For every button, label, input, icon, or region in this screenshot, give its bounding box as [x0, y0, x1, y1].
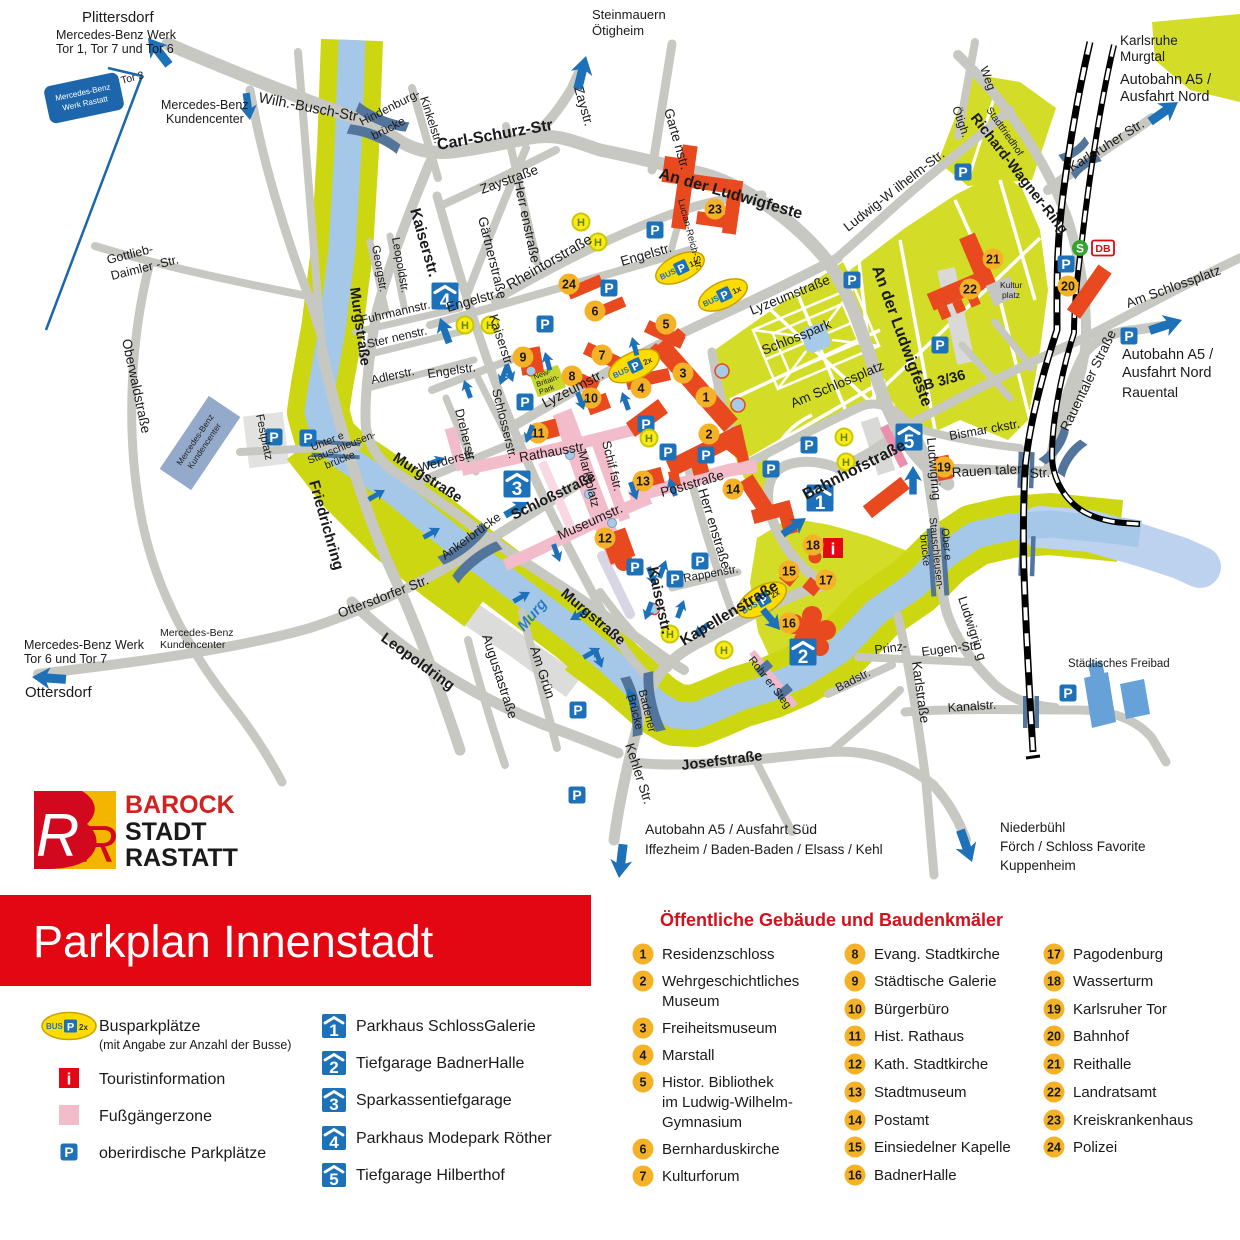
svg-text:Rauental: Rauental [1122, 384, 1178, 400]
svg-text:DB: DB [1095, 243, 1111, 255]
svg-text:Tor 1, Tor 7 und Tor 6: Tor 1, Tor 7 und Tor 6 [56, 42, 174, 56]
svg-text:2: 2 [798, 647, 809, 668]
svg-text:Kultur: Kultur [1000, 280, 1022, 290]
svg-text:24: 24 [562, 278, 576, 292]
svg-text:2: 2 [706, 428, 713, 442]
svg-text:Bernharduskirche: Bernharduskirche [662, 1141, 780, 1158]
svg-text:Einsiedelner Kapelle: Einsiedelner Kapelle [874, 1139, 1011, 1156]
svg-text:Kreiskrankenhaus: Kreiskrankenhaus [1073, 1112, 1193, 1129]
svg-text:Karlsruhe: Karlsruhe [1120, 33, 1178, 48]
svg-text:1: 1 [703, 391, 710, 405]
svg-text:7: 7 [640, 1170, 647, 1184]
svg-text:RASTATT: RASTATT [125, 844, 238, 872]
svg-text:Ötigheim: Ötigheim [592, 23, 644, 38]
svg-text:12: 12 [848, 1058, 862, 1072]
svg-text:Bürgerbüro: Bürgerbüro [874, 1001, 949, 1018]
svg-text:Evang. Stadtkirche: Evang. Stadtkirche [874, 946, 1000, 963]
svg-text:15: 15 [848, 1141, 862, 1155]
svg-text:Gymnasium: Gymnasium [662, 1114, 742, 1131]
svg-text:Museum: Museum [662, 993, 720, 1010]
svg-text:Städtisches Freibad: Städtisches Freibad [1068, 658, 1170, 670]
svg-text:Str.: Str. [1029, 465, 1050, 481]
svg-text:10: 10 [584, 392, 598, 406]
svg-text:Kundencenter: Kundencenter [166, 112, 244, 126]
svg-text:platz: platz [1002, 290, 1020, 300]
svg-text:Ottersdorf: Ottersdorf [25, 684, 93, 701]
svg-text:Touristinformation: Touristinformation [99, 1071, 225, 1088]
svg-text:Karlsruher Tor: Karlsruher Tor [1073, 1001, 1167, 1018]
svg-text:Fußgängerzone: Fußgängerzone [99, 1108, 212, 1125]
svg-text:Plittersdorf: Plittersdorf [82, 9, 155, 26]
svg-text:6: 6 [592, 305, 599, 319]
svg-text:9: 9 [852, 975, 859, 989]
svg-text:22: 22 [963, 283, 977, 297]
svg-text:Wasserturm: Wasserturm [1073, 973, 1153, 990]
svg-text:1: 1 [640, 948, 647, 962]
svg-text:4: 4 [329, 1133, 339, 1152]
svg-text:Kulturforum: Kulturforum [662, 1168, 740, 1185]
svg-text:9: 9 [520, 351, 527, 365]
svg-text:P: P [64, 1144, 73, 1160]
svg-text:7: 7 [599, 349, 606, 363]
svg-text:P: P [67, 1022, 74, 1034]
svg-text:21: 21 [986, 253, 1000, 267]
svg-text:Autobahn A5 /: Autobahn A5 / [1120, 72, 1212, 88]
svg-text:im Ludwig-Wilhelm-: im Ludwig-Wilhelm- [662, 1094, 793, 1111]
svg-text:Mercedes-Benz Werk: Mercedes-Benz Werk [56, 28, 177, 42]
svg-text:5: 5 [663, 318, 670, 332]
svg-text:Förch / Schloss Favorite: Förch / Schloss Favorite [1000, 839, 1146, 854]
svg-text:12: 12 [598, 532, 612, 546]
svg-text:Parkhaus SchlossGalerie: Parkhaus SchlossGalerie [356, 1018, 536, 1035]
svg-text:2: 2 [329, 1058, 338, 1077]
svg-text:(mit Angabe zur Anzahl der Bus: (mit Angabe zur Anzahl der Busse) [99, 1038, 291, 1052]
svg-text:3: 3 [329, 1095, 338, 1114]
svg-text:Niederbühl: Niederbühl [1000, 820, 1065, 835]
svg-text:Kath. Stadtkirche: Kath. Stadtkirche [874, 1056, 988, 1073]
svg-text:Mercedes-Benz Werk: Mercedes-Benz Werk [24, 638, 145, 652]
svg-text:Landratsamt: Landratsamt [1073, 1084, 1157, 1101]
svg-text:14: 14 [848, 1114, 862, 1128]
svg-text:R: R [36, 802, 79, 869]
svg-text:Autobahn A5 /: Autobahn A5 / [1122, 347, 1214, 363]
svg-text:Reithalle: Reithalle [1073, 1056, 1131, 1073]
svg-text:14: 14 [726, 483, 740, 497]
svg-text:BAROCK: BAROCK [125, 791, 235, 819]
svg-text:Steinmauern: Steinmauern [592, 7, 666, 22]
svg-text:Polizei: Polizei [1073, 1139, 1117, 1156]
svg-text:18: 18 [806, 539, 820, 553]
svg-text:4: 4 [638, 382, 645, 396]
svg-text:Autobahn A5 / Ausfahrt Süd: Autobahn A5 / Ausfahrt Süd [645, 821, 817, 837]
svg-text:Tiefgarage Hilberthof: Tiefgarage Hilberthof [356, 1167, 505, 1184]
svg-text:Busparkplätze: Busparkplätze [99, 1018, 200, 1035]
svg-text:11: 11 [848, 1030, 861, 1044]
svg-text:20: 20 [1047, 1030, 1061, 1044]
svg-text:BadnerHalle: BadnerHalle [874, 1167, 957, 1184]
svg-text:10: 10 [848, 1003, 862, 1017]
svg-text:2x: 2x [79, 1023, 88, 1032]
svg-text:23: 23 [708, 203, 722, 217]
svg-text:i: i [831, 540, 836, 559]
svg-text:STADT: STADT [125, 818, 206, 846]
svg-text:Kuppenheim: Kuppenheim [1000, 858, 1076, 873]
svg-text:2: 2 [640, 975, 647, 989]
svg-text:Residenzschloss: Residenzschloss [662, 946, 775, 963]
svg-text:3: 3 [512, 479, 523, 500]
svg-text:22: 22 [1047, 1086, 1061, 1100]
svg-text:19: 19 [1047, 1003, 1061, 1017]
svg-text:16: 16 [848, 1169, 862, 1183]
svg-text:Hist. Rathaus: Hist. Rathaus [874, 1028, 964, 1045]
svg-text:Marstall: Marstall [662, 1047, 715, 1064]
svg-text:3: 3 [640, 1022, 647, 1036]
svg-text:S: S [1076, 242, 1084, 256]
svg-text:BUS: BUS [46, 1022, 64, 1031]
svg-text:Sparkassentiefgarage: Sparkassentiefgarage [356, 1092, 512, 1109]
svg-text:Murgtal: Murgtal [1120, 49, 1165, 64]
svg-text:Städtische Galerie: Städtische Galerie [874, 973, 997, 990]
svg-text:Tor 6 und Tor 7: Tor 6 und Tor 7 [24, 652, 107, 666]
svg-text:Stadtmuseum: Stadtmuseum [874, 1084, 967, 1101]
svg-text:Kundencenter: Kundencenter [160, 639, 226, 651]
svg-text:24: 24 [1047, 1141, 1061, 1155]
svg-text:13: 13 [848, 1086, 862, 1100]
svg-text:Parkplan Innenstadt: Parkplan Innenstadt [33, 916, 434, 967]
svg-text:Ausfahrt Nord: Ausfahrt Nord [1122, 365, 1211, 381]
svg-text:8: 8 [852, 948, 859, 962]
svg-text:Iffezheim / Baden-Baden / Elsa: Iffezheim / Baden-Baden / Elsass / Kehl [645, 842, 883, 857]
svg-text:3: 3 [680, 367, 687, 381]
svg-text:21: 21 [1047, 1058, 1061, 1072]
svg-text:Pagodenburg: Pagodenburg [1073, 946, 1163, 963]
svg-text:15: 15 [782, 565, 796, 579]
svg-text:Tiefgarage BadnerHalle: Tiefgarage BadnerHalle [356, 1055, 525, 1072]
svg-text:1: 1 [329, 1021, 338, 1040]
svg-text:Wehrgeschichtliches: Wehrgeschichtliches [662, 973, 799, 990]
svg-text:17: 17 [819, 574, 833, 588]
svg-text:5: 5 [640, 1076, 647, 1090]
svg-text:17: 17 [1047, 948, 1061, 962]
svg-text:Mercedes-Benz: Mercedes-Benz [160, 627, 234, 639]
svg-text:Bahnhof: Bahnhof [1073, 1028, 1130, 1045]
svg-text:13: 13 [636, 475, 650, 489]
svg-text:20: 20 [1061, 280, 1075, 294]
svg-text:oberirdische Parkplätze: oberirdische Parkplätze [99, 1145, 266, 1162]
svg-text:Ausfahrt Nord: Ausfahrt Nord [1120, 89, 1209, 105]
svg-text:18: 18 [1047, 975, 1061, 989]
svg-text:23: 23 [1047, 1114, 1061, 1128]
svg-text:Mercedes-Benz: Mercedes-Benz [161, 98, 249, 112]
svg-text:Parkhaus Modepark Röther: Parkhaus Modepark Röther [356, 1130, 552, 1147]
svg-text:Postamt: Postamt [874, 1112, 930, 1129]
svg-text:6: 6 [640, 1143, 647, 1157]
svg-text:Freiheitsmuseum: Freiheitsmuseum [662, 1020, 777, 1037]
svg-text:4: 4 [640, 1049, 647, 1063]
svg-text:16: 16 [782, 617, 796, 631]
svg-text:i: i [67, 1070, 72, 1089]
svg-text:5: 5 [329, 1170, 338, 1189]
svg-text:Histor. Bibliothek: Histor. Bibliothek [662, 1074, 774, 1091]
svg-text:Öffentliche Gebäude und Bauden: Öffentliche Gebäude und Baudenkmäler [660, 910, 1003, 930]
